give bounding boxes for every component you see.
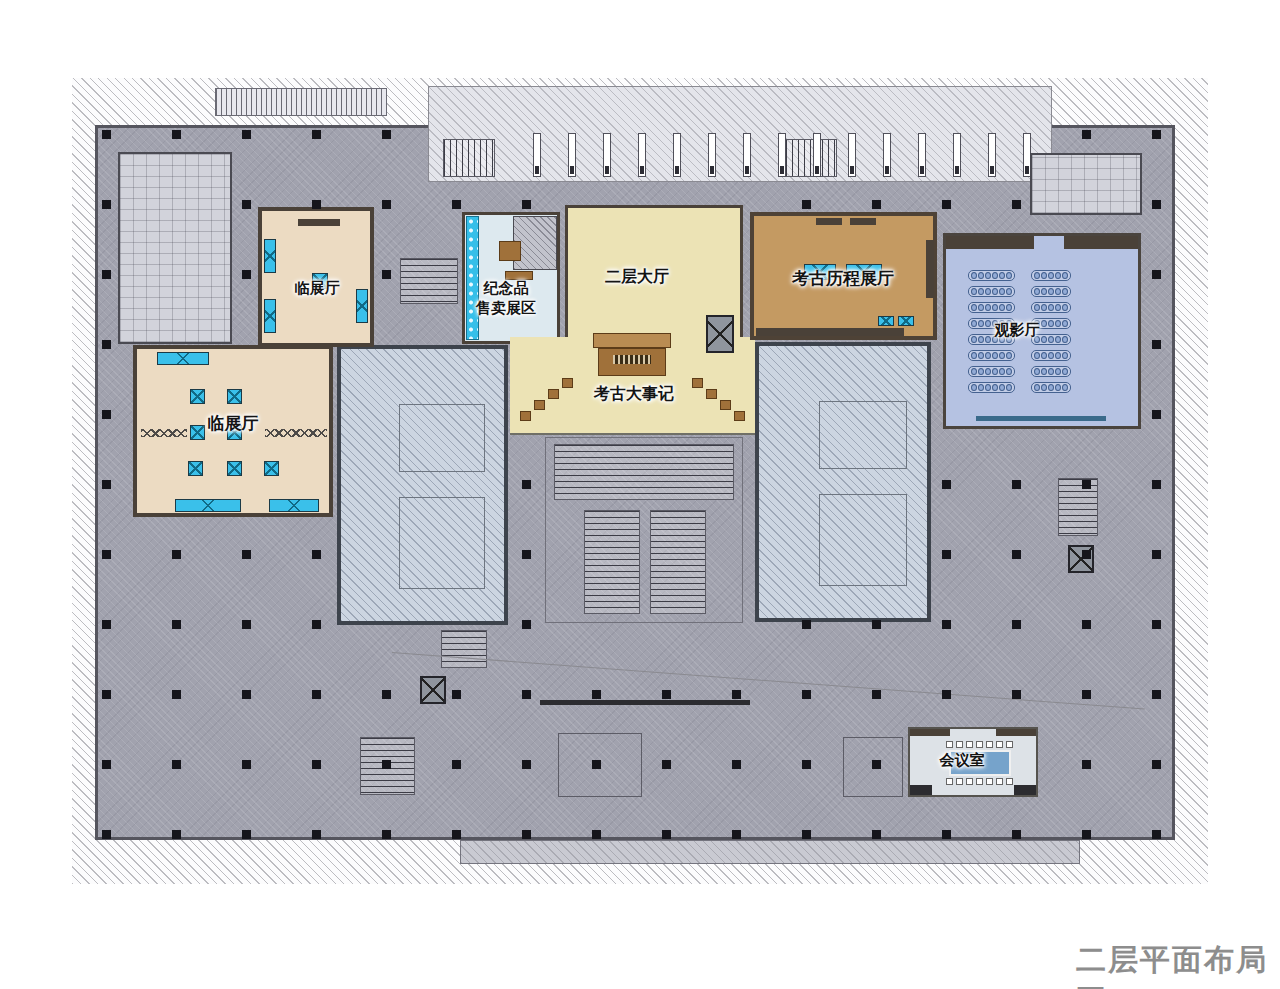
zigzag-partition xyxy=(265,429,327,437)
seat xyxy=(1006,304,1012,311)
chair xyxy=(966,741,973,748)
display-case xyxy=(227,461,242,476)
wall-case-band xyxy=(756,328,904,336)
column xyxy=(382,760,391,769)
seat xyxy=(1062,352,1068,359)
column xyxy=(312,200,321,209)
seat xyxy=(978,320,984,327)
seat-bench xyxy=(1031,382,1071,393)
label-temporary-exhibition-upper: 临展厅 xyxy=(295,279,340,298)
column xyxy=(242,620,251,629)
display-case xyxy=(356,289,368,323)
column xyxy=(802,690,811,699)
meeting-chairs-top xyxy=(946,741,1013,748)
column xyxy=(452,690,461,699)
wall-segment xyxy=(540,700,750,705)
wall-case xyxy=(850,218,876,225)
column xyxy=(312,690,321,699)
column xyxy=(382,200,391,209)
seat-bench xyxy=(968,270,1015,281)
room-temporary-exhibition-upper xyxy=(258,207,374,347)
restroom-block-topleft xyxy=(118,152,232,344)
seat xyxy=(1041,272,1047,279)
window-slot xyxy=(708,133,716,177)
chair xyxy=(946,778,953,785)
display-case xyxy=(898,316,914,326)
seat xyxy=(992,288,998,295)
column xyxy=(732,690,741,699)
meeting-chairs-bottom xyxy=(946,778,1013,785)
chair xyxy=(976,741,983,748)
service-stair xyxy=(400,258,458,304)
seat xyxy=(985,336,991,343)
column xyxy=(102,270,111,279)
restroom-block-topright xyxy=(1030,153,1142,215)
seat xyxy=(1034,304,1040,311)
column xyxy=(102,200,111,209)
terrace xyxy=(460,840,1080,864)
seat xyxy=(1062,320,1068,327)
stair-flight xyxy=(584,510,640,614)
display-case xyxy=(269,499,319,512)
column xyxy=(242,130,251,139)
seat-bench xyxy=(1031,350,1071,361)
display-case xyxy=(188,461,203,476)
seat xyxy=(1041,320,1047,327)
chair xyxy=(996,741,1003,748)
column xyxy=(1152,830,1161,839)
seat xyxy=(978,368,984,375)
label-souvenir-line2: 售卖展区 xyxy=(476,297,536,317)
column xyxy=(1152,270,1161,279)
courtyard-rail xyxy=(819,494,907,586)
window-slot xyxy=(673,133,681,177)
column xyxy=(242,830,251,839)
seat xyxy=(985,320,991,327)
seat xyxy=(1034,368,1040,375)
column xyxy=(102,410,111,419)
seat xyxy=(1048,288,1054,295)
column xyxy=(662,760,671,769)
window-slot-row xyxy=(429,87,1051,181)
seat xyxy=(1006,352,1012,359)
seat xyxy=(971,272,977,279)
seat xyxy=(999,384,1005,391)
seat-bench xyxy=(968,302,1015,313)
column xyxy=(312,130,321,139)
seat xyxy=(1041,336,1047,343)
seat-bench xyxy=(1031,286,1071,297)
column xyxy=(1012,690,1021,699)
elevator-shaft xyxy=(420,676,446,704)
column xyxy=(312,760,321,769)
seat xyxy=(992,384,998,391)
seat xyxy=(1041,352,1047,359)
seat xyxy=(1062,272,1068,279)
column xyxy=(592,830,601,839)
column xyxy=(872,200,881,209)
column xyxy=(382,830,391,839)
column xyxy=(452,200,461,209)
column xyxy=(942,620,951,629)
sales-desk xyxy=(499,241,521,261)
column xyxy=(382,130,391,139)
column xyxy=(102,620,111,629)
courtyard-left xyxy=(337,345,508,625)
seat xyxy=(1006,384,1012,391)
column xyxy=(102,830,111,839)
stair-flight xyxy=(650,510,706,614)
seat xyxy=(999,368,1005,375)
display-case xyxy=(227,389,242,404)
seat xyxy=(1006,368,1012,375)
seat-row xyxy=(968,382,1071,393)
seat xyxy=(999,288,1005,295)
column xyxy=(382,270,391,279)
window-slot xyxy=(778,133,786,177)
window-slot xyxy=(918,133,926,177)
seat xyxy=(1062,368,1068,375)
grand-staircase xyxy=(545,437,743,623)
courtyard-rail xyxy=(399,497,485,589)
seat xyxy=(1055,368,1061,375)
seat xyxy=(985,304,991,311)
label-cinema: 观影厅 xyxy=(995,321,1040,340)
seat xyxy=(1034,352,1040,359)
roof-strip xyxy=(215,88,387,116)
column xyxy=(732,830,741,839)
column xyxy=(1012,200,1021,209)
seat-row xyxy=(968,270,1071,281)
column xyxy=(942,830,951,839)
display-case xyxy=(190,389,205,404)
wall-case xyxy=(816,218,842,225)
column xyxy=(802,830,811,839)
seat xyxy=(1006,272,1012,279)
seat xyxy=(999,304,1005,311)
seat xyxy=(971,320,977,327)
column xyxy=(942,200,951,209)
seat xyxy=(985,352,991,359)
display-case xyxy=(264,239,276,273)
column xyxy=(172,130,181,139)
seat xyxy=(971,384,977,391)
seat-bench xyxy=(968,382,1015,393)
wall-case xyxy=(298,219,340,226)
seat xyxy=(1034,288,1040,295)
display-case xyxy=(264,299,276,333)
column xyxy=(802,200,811,209)
column xyxy=(1152,200,1161,209)
seat xyxy=(1048,336,1054,343)
seat xyxy=(1041,384,1047,391)
column xyxy=(1012,620,1021,629)
label-archaeology-history: 考古历程展厅 xyxy=(792,267,894,290)
seat xyxy=(999,352,1005,359)
column xyxy=(1152,480,1161,489)
seat xyxy=(971,352,977,359)
column xyxy=(522,620,531,629)
column xyxy=(102,130,111,139)
chair xyxy=(946,741,953,748)
column xyxy=(942,690,951,699)
column xyxy=(102,760,111,769)
floor-plan: 临展厅 临展厅 纪念品 售卖展区 二层大厅 考古大事记 考古历程展厅 观影厅 会… xyxy=(0,0,1280,989)
column xyxy=(522,200,531,209)
column xyxy=(242,550,251,559)
column xyxy=(942,550,951,559)
column xyxy=(662,690,671,699)
column xyxy=(942,480,951,489)
label-souvenir: 纪念品 售卖展区 xyxy=(476,278,536,317)
window-slot xyxy=(883,133,891,177)
seat xyxy=(985,272,991,279)
seat-bench xyxy=(968,286,1015,297)
seat xyxy=(1055,272,1061,279)
window-slot xyxy=(743,133,751,177)
column xyxy=(872,690,881,699)
column xyxy=(872,620,881,629)
column xyxy=(522,480,531,489)
seat-bench xyxy=(968,350,1015,361)
seat xyxy=(1062,336,1068,343)
window-slot xyxy=(953,133,961,177)
column xyxy=(1082,130,1091,139)
entrance-canopy xyxy=(428,86,1052,182)
chair xyxy=(966,778,973,785)
cinema-screen xyxy=(976,416,1106,421)
cinema-wall xyxy=(946,236,1034,249)
column xyxy=(242,690,251,699)
meeting-wall xyxy=(1014,785,1036,795)
column xyxy=(1082,760,1091,769)
seat xyxy=(971,288,977,295)
seat-row xyxy=(968,366,1071,377)
chair xyxy=(986,778,993,785)
label-hall: 二层大厅 xyxy=(605,267,669,288)
column xyxy=(1082,830,1091,839)
seat xyxy=(992,352,998,359)
column xyxy=(1152,690,1161,699)
seat xyxy=(978,304,984,311)
cinema-wall xyxy=(1064,236,1138,249)
seat xyxy=(1034,384,1040,391)
column xyxy=(522,830,531,839)
column xyxy=(172,550,181,559)
window-slot xyxy=(813,133,821,177)
column xyxy=(872,760,881,769)
seat xyxy=(992,304,998,311)
courtyard-rail xyxy=(819,401,907,469)
window-slot xyxy=(533,133,541,177)
column xyxy=(1082,480,1091,489)
column xyxy=(102,480,111,489)
service-stair xyxy=(1058,478,1098,536)
seat xyxy=(992,272,998,279)
seat xyxy=(1048,368,1054,375)
window-slot xyxy=(568,133,576,177)
column xyxy=(1152,340,1161,349)
chair xyxy=(976,778,983,785)
column xyxy=(1082,620,1091,629)
column xyxy=(522,760,531,769)
seat xyxy=(1055,352,1061,359)
display-case xyxy=(878,316,894,326)
column xyxy=(242,270,251,279)
column xyxy=(102,690,111,699)
desk-detail xyxy=(613,355,651,364)
column xyxy=(312,550,321,559)
column xyxy=(102,340,111,349)
seat xyxy=(978,352,984,359)
seat xyxy=(978,336,984,343)
seat xyxy=(985,368,991,375)
column xyxy=(802,620,811,629)
column xyxy=(1152,130,1161,139)
room-cinema xyxy=(943,233,1141,429)
label-temporary-exhibition-lower: 临展厅 xyxy=(208,412,259,435)
courtyard-right xyxy=(755,342,931,622)
display-case xyxy=(175,499,241,512)
seat xyxy=(1041,288,1047,295)
label-meeting: 会议室 xyxy=(940,751,985,770)
column xyxy=(1012,830,1021,839)
seat xyxy=(1048,384,1054,391)
window-slot xyxy=(638,133,646,177)
column xyxy=(592,760,601,769)
seat xyxy=(985,288,991,295)
chair xyxy=(996,778,1003,785)
window-slot xyxy=(848,133,856,177)
drawing-title: 二层平面布局图 xyxy=(1076,940,1280,989)
column xyxy=(172,690,181,699)
seat xyxy=(1048,304,1054,311)
seat xyxy=(999,272,1005,279)
seat xyxy=(1006,288,1012,295)
seat xyxy=(978,272,984,279)
chair xyxy=(956,778,963,785)
display-case xyxy=(264,461,279,476)
seat xyxy=(1062,288,1068,295)
seat xyxy=(1062,304,1068,311)
column xyxy=(1082,550,1091,559)
label-souvenir-line1: 纪念品 xyxy=(476,278,536,298)
column xyxy=(102,550,111,559)
column xyxy=(1152,760,1161,769)
column xyxy=(1152,620,1161,629)
column xyxy=(452,830,461,839)
display-case xyxy=(157,352,209,365)
seat xyxy=(1034,272,1040,279)
meeting-wall xyxy=(996,729,1036,736)
service-stair xyxy=(441,630,487,668)
seat-bench xyxy=(968,366,1015,377)
seat xyxy=(1055,304,1061,311)
column xyxy=(242,760,251,769)
column xyxy=(172,620,181,629)
seat xyxy=(1055,384,1061,391)
chair xyxy=(1006,778,1013,785)
seat xyxy=(992,368,998,375)
seat xyxy=(1048,320,1054,327)
column xyxy=(872,830,881,839)
courtyard-rail xyxy=(399,404,485,472)
seat xyxy=(1055,320,1061,327)
seat xyxy=(1048,352,1054,359)
label-chronicle: 考古大事记 xyxy=(594,384,674,405)
column xyxy=(172,760,181,769)
seat-bench xyxy=(1031,270,1071,281)
seat xyxy=(1041,304,1047,311)
column xyxy=(382,690,391,699)
column xyxy=(522,550,531,559)
reception-desk xyxy=(598,348,666,376)
column xyxy=(242,200,251,209)
meeting-wall xyxy=(910,785,932,795)
column xyxy=(592,690,601,699)
seat xyxy=(971,336,977,343)
chair xyxy=(1006,741,1013,748)
column xyxy=(1082,690,1091,699)
wall-case xyxy=(926,240,934,298)
column xyxy=(452,760,461,769)
column xyxy=(1012,550,1021,559)
seat xyxy=(1048,272,1054,279)
column xyxy=(1152,410,1161,419)
seat xyxy=(985,384,991,391)
steps-right xyxy=(692,378,748,422)
column xyxy=(802,760,811,769)
display-case xyxy=(190,425,205,440)
seat-bench xyxy=(1031,366,1071,377)
column xyxy=(172,830,181,839)
chair xyxy=(986,741,993,748)
column xyxy=(312,830,321,839)
elevator-shaft xyxy=(706,315,734,353)
seat xyxy=(978,384,984,391)
chair xyxy=(956,741,963,748)
column xyxy=(1012,480,1021,489)
zigzag-partition xyxy=(141,429,187,437)
column xyxy=(662,830,671,839)
seat-row xyxy=(968,302,1071,313)
window-slot xyxy=(603,133,611,177)
column xyxy=(1152,550,1161,559)
reception-desk xyxy=(593,333,671,348)
seat xyxy=(971,368,977,375)
seat xyxy=(1055,288,1061,295)
steps-left xyxy=(518,378,574,422)
seat-row xyxy=(968,350,1071,361)
window-slot xyxy=(988,133,996,177)
column xyxy=(522,690,531,699)
seat xyxy=(1055,336,1061,343)
seat-bench xyxy=(1031,302,1071,313)
seat xyxy=(1062,384,1068,391)
seat xyxy=(978,288,984,295)
seat-row xyxy=(968,286,1071,297)
column xyxy=(312,620,321,629)
seat xyxy=(971,304,977,311)
seat xyxy=(1041,368,1047,375)
stair-flight xyxy=(554,444,734,500)
meeting-wall xyxy=(910,729,950,736)
column xyxy=(732,760,741,769)
